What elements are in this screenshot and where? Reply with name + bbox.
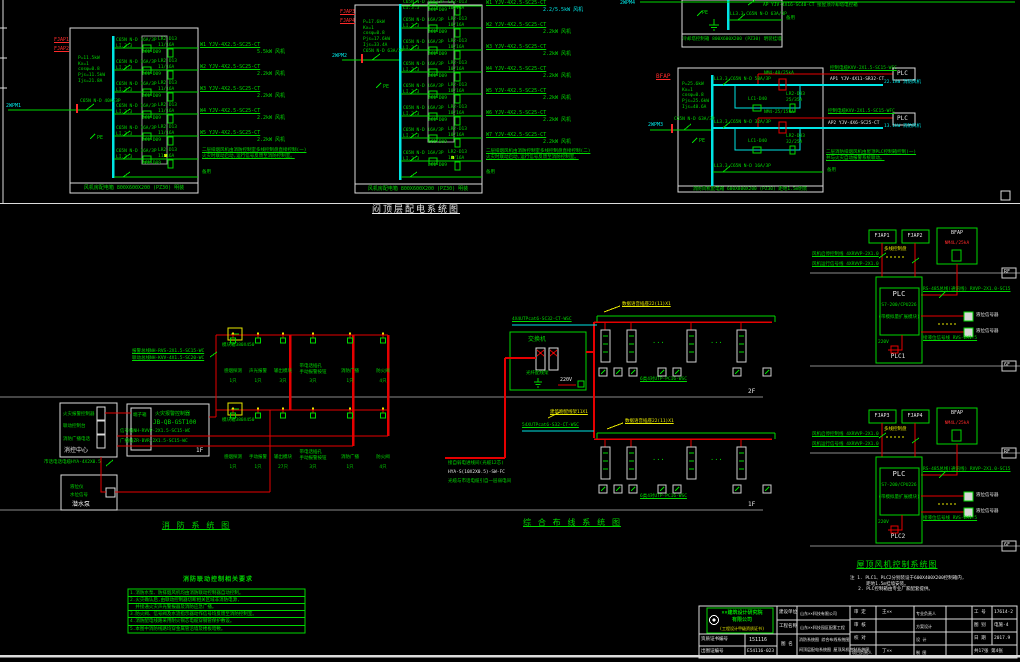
cabling-outlet-label-2f: 数据语音插座22(11)X1 <box>622 302 671 308</box>
fire-device-name: 防火阀 <box>376 369 390 375</box>
panel2-feeder-tag: 2WPM2 <box>332 53 347 59</box>
fire-device-qty: 3只 <box>279 379 286 385</box>
panel4-params: P=25.6kW Kx=1 cosφ=0.8 Pjs=25.6kW Ijs=48… <box>682 82 709 110</box>
titleblock-chart-no: E54116-023 <box>747 649 774 655</box>
titleblock-chart-label: 出图证编号 <box>701 649 724 655</box>
fan1-protector: NM4L/25kA <box>945 241 969 247</box>
panel4-b3-spare: 备用 <box>827 168 836 174</box>
cabling-ellipsis: ··· <box>710 456 723 465</box>
panel2-branch-thermal: LR2-D13 10/16A <box>448 0 467 11</box>
fan1-level-line: 接液位信号线 RVS-2X1.5 <box>923 336 977 342</box>
cabling-outlet-label-1f: 数据语音插座22(11)X1 <box>625 419 674 425</box>
panel1-feeder-tag: 2WPM1 <box>6 103 21 109</box>
fan1-signal-line: 风机运行信号线 4XRVVP-2X1.0 <box>812 262 879 268</box>
notes-row: 3.防火阀、信号阀及水流指示器动作信号均反馈至消防控制室。 <box>130 612 257 618</box>
fan1-manual-panel: 多线控制盘 <box>884 247 907 253</box>
fan1-sensor: 液位信号器 <box>976 329 999 335</box>
fan1-marker-6f: 6F <box>1004 362 1010 368</box>
fan1-sensor: 液位信号器 <box>976 313 999 319</box>
fire-device-name: 感烟探测 <box>224 455 242 461</box>
panel1-branch-breaker: C65N N-D 16A/3P LI.3.3 <box>116 60 157 71</box>
panel2-branch-thermal: LR2-D13 10/16A <box>448 39 467 50</box>
panel2-branch-breaker: C65N N-D 16A/3P LI.3.3 <box>403 106 444 117</box>
fire-device-qty: 1只 <box>229 379 236 385</box>
panel2-branch-breaker: C65N N-D 16A/3P LI.3.3 <box>403 62 444 73</box>
cabling-source-line3: 光缆与市话电缆引自一层弱电间 <box>448 479 511 485</box>
panel4-b2-cable: AP2 YJV-4X6-SC25-CT <box>828 121 879 127</box>
panel2-branch-contactor: LC1-D09 <box>428 30 447 36</box>
panel1-cable: W1 YJV-4X2.5-SC25-CT <box>200 42 260 48</box>
cabling-mdf-label: 建筑物配线架11X1 <box>550 410 588 416</box>
panel1-cable: W5 YJV-4X2.5-SC25-CT <box>200 130 260 136</box>
cabling-source-line2: HYA-S(10X2X0.5)-SW-FC <box>448 470 505 476</box>
cabling-odf-label: 光纤配线架 <box>526 371 549 377</box>
cad-drawing-sheet: 闷顶层配电系统图 FJAP1 FJAP2 2WPM1 C65N N-D 40A/… <box>0 0 1020 662</box>
fire-cable-broadcast: 广播线ZR-BVR-2X1.5-SC15-WC <box>120 439 188 445</box>
panel2-branch-contactor: LC1-D09 <box>428 52 447 58</box>
panel2-cable: W1 YJV-4X2.5-SC25-CT <box>486 0 546 6</box>
panel2-load: 2.2kW 风机 <box>543 73 571 79</box>
fan2-marker-6f: 6F <box>1004 542 1010 548</box>
panel2-branch-breaker: C65N N-D 16A/3P LI.3.3 <box>403 128 444 139</box>
panel4-b2-load: 13.1kW 消防风机 <box>884 124 921 130</box>
fire-diagram-title: 消 防 系 统 图 <box>162 521 230 531</box>
fan2-ai-module: (带模拟量扩展模块) <box>878 495 919 501</box>
panel2-pe-label: PE <box>383 84 389 90</box>
titleblock-jobno-value: 17614-2 <box>994 610 1013 616</box>
panel3-feeder-tag: 2WPM4 <box>620 0 635 6</box>
titleblock-sheet-names1: 消防系统图 综合布线系统图 <box>799 637 849 642</box>
panel2-load: 2.2kW 风机 <box>543 29 571 35</box>
titleblock-owner: 山东××科技有限公司 <box>800 611 837 616</box>
titleblock-cert-no: 151116 <box>749 637 767 643</box>
panel2-branch-thermal: LR2-D13 10/16A <box>448 83 467 94</box>
titleblock-company-line1: ××建筑设计研究院 <box>721 610 762 616</box>
cabling-riser-1f: 54XUTPcat6-S32-CT-WSC <box>522 423 579 429</box>
panel3-spare-label: 备用 <box>786 16 795 22</box>
panel1-pe-label: PE <box>97 135 103 141</box>
fire-device-name: 消防广播 <box>341 369 359 375</box>
fire-device-name: 防火阀 <box>376 455 390 461</box>
fire-module-box-label: 模块箱380X450 <box>222 343 254 349</box>
titleblock-pm-label: 项目负责人 <box>852 650 872 655</box>
notes-row: 5.本图中消防线路均穿金属管沿墙及楼板暗敷。 <box>130 627 225 633</box>
fire-center-label: 消控中心 <box>64 447 88 455</box>
panel2-branch-breaker: C65N N-D 16A/3P LI.3.3 <box>403 84 444 95</box>
panel4-note: 二层消防排烟风机由屋顶PLC控制箱控制(一) 并与火灾自动报警系统联动。 <box>826 150 916 161</box>
fan1-control-line: 风机启停控制线 4XRVVP-2X1.0 <box>812 252 879 258</box>
panel2-branch-breaker: C65N N-D 16A/3P LI.3.3 <box>403 151 444 162</box>
fan2-manual-panel: 多线控制盘 <box>884 427 907 433</box>
panel1-branch-thermal: LR2-D13 11/16A <box>158 81 177 92</box>
fan2-fjap4-tag: FJAP4 <box>907 413 922 419</box>
fan2-fjap3-tag: FJAP3 <box>874 413 889 419</box>
panel1-branch-thermal: LR2-D13 11/16A <box>158 103 177 114</box>
fire-controller-model: JB-QB-GST100 <box>153 419 196 427</box>
panel1-tag2: FJAP2 <box>54 46 69 52</box>
panel4-b2-control-cable: 控制电缆KVV-2X1.5-SC15-WFC <box>828 109 895 115</box>
panel2-load: 2.2kW 风机 <box>543 51 571 57</box>
notes-table-title: 消防联动控制相关要求 <box>183 576 253 584</box>
titleblock-reviewer-label: 审 核 <box>854 623 866 629</box>
panel1-feeder-breaker: C65N N-D 40A/3P <box>80 99 121 105</box>
panel1-cable: W2 YJV-4X2.5-SC25-CT <box>200 64 260 70</box>
titleblock-pm-name: 丁×× <box>882 649 892 655</box>
panel2-branch-contactor: LC1-D09 <box>428 140 447 146</box>
panel2-branch-thermal: LR2-D13 10/16A <box>448 105 467 116</box>
panel4-b2-thermal: LR2-D33 32/25A <box>786 134 805 145</box>
fire-device-qty: 27只 <box>278 465 288 471</box>
fire-cable-alarm-bus: 报警总线NH-RVS-2X1.5-SC15-WC <box>132 349 204 355</box>
fire-pump-label: 潜水泵 <box>72 501 90 509</box>
panel2-tag2: FJAP4 <box>340 18 355 24</box>
titleblock-cert-label: 资质证书编号 <box>701 637 728 643</box>
panel4-b3-breaker: LL3.3 C65N N-D 16A/3P <box>714 164 771 170</box>
fan-control-graphics <box>869 228 1016 551</box>
panel1-load: 2.2kW 风机 <box>257 115 285 121</box>
fire-device-name: 手动报警 <box>249 455 267 461</box>
panel2-spare-label: 备用 <box>486 170 495 176</box>
fan1-marker-rf: RF <box>1004 269 1010 275</box>
fan2-sensor: 液位信号器 <box>976 509 999 515</box>
titleblock-approver-label: 审 定 <box>854 610 866 616</box>
panel1-bottom-label: 风机房配电箱 800X600X200 (PZ30) 明装 <box>84 185 184 191</box>
titleblock-company-line2: 有限公司 <box>732 617 752 623</box>
fan2-marker-rf: RF <box>1004 449 1010 455</box>
panel1-branch-thermal: LR2-D13 11/16A <box>158 125 177 136</box>
panel1-load: 2.2kW 风机 <box>257 93 285 99</box>
panel4-b1-breaker: LL3.3 C65N N-D 50A/3P <box>714 77 771 83</box>
panel1-cable: W4 YJV-4X2.5-SC25-CT <box>200 108 260 114</box>
fan1-rs485: RS-485总线(通讯线) RVVP-2X1.0-SC15 <box>923 287 1011 293</box>
fire-device-qty: 1只 <box>254 465 261 471</box>
fan1-name: PLC1 <box>891 353 905 361</box>
panel1-branch-breaker: C65N N-D 16A/3P LI.3.3 <box>116 104 157 115</box>
panel1-branch-breaker: C65N N-D 16A/3P LI.3.3 <box>116 126 157 137</box>
panel4-feeder-tag: 2WPM3 <box>648 122 663 128</box>
panel1-tag1: FJAP1 <box>54 37 69 43</box>
fan2-cpu: S7-200/CPU226 <box>881 483 916 489</box>
fan1-ai-module: (带模拟量扩展模块) <box>878 315 919 321</box>
panel4-b1-cable: AP1 YJV-4X11-SR32-CT <box>830 77 884 83</box>
panel1-branch-contactor: LC1-D09 <box>142 138 161 144</box>
fan2-level-line: 接液位信号线 RVS-2X1.5 <box>923 516 977 522</box>
panel4-pe-label: PE <box>699 138 705 144</box>
panel2-cable: W2 YJV-4X2.5-SC25-CT <box>486 22 546 28</box>
cabling-source-line1: 接自弱电进线间(光缆12芯) <box>448 461 504 467</box>
panel2-cable: W4 YJV-4X2.5-SC25-CT <box>486 66 546 72</box>
titleblock-sheet-label: 图 名 <box>781 642 793 648</box>
panel2-branch-thermal: LR2-D13 10/16A <box>448 61 467 72</box>
panel1-load: 5.5kW 风机 <box>257 49 285 55</box>
fire-device-name: 带电话插孔 手动报警按钮 <box>300 364 327 375</box>
titleblock-drafter-label: 制 图 <box>916 650 926 655</box>
panel2-cable: W5 YJV-4X2.5-SC25-CT <box>486 88 546 94</box>
panel2-tag1: FJAP3 <box>340 9 355 15</box>
panel2-load: 2.2kW 风机 <box>543 95 571 101</box>
cabling-riser-2f: 4X4UTPcat6-SC32-CT-WSC <box>512 317 572 323</box>
fan1-fjap2-tag: FJAP2 <box>907 233 922 239</box>
cabling-220v-label: 220V <box>560 377 572 383</box>
panel2-branch-breaker: C65N N-D 16A/3P LI.3.3 <box>403 40 444 51</box>
fan1-cpu: S7-200/CPU226 <box>881 303 916 309</box>
fire-module-box-label: 模块箱380X450 <box>222 418 254 424</box>
fire-device-name: 输出模块 <box>274 455 292 461</box>
titleblock-sheet-count: 共17张 第4张 <box>974 649 1003 655</box>
panel3-bottom-label: 冷却塔控制箱 800X600X200 (PZ30) 明装挂墙 <box>682 37 781 43</box>
panel2-branch-contactor: LC1-D09 <box>428 118 447 124</box>
cabling-horizontal-cable-2f: 6类4对UTP-PC16-WSC <box>640 377 687 383</box>
panel1-branch-thermal: LR2-D13 11/16A <box>158 148 177 159</box>
titleblock-company-sub: (工程设计甲级资质证书) <box>720 626 765 631</box>
fire-device-qty: 3只 <box>309 465 316 471</box>
fire-cable-signal: 信号线NH-RVVP-2X1.5-SC15-WC <box>120 429 190 435</box>
panel1-branch-contactor: LC1-D09 <box>142 161 161 167</box>
panel4-bottom-label: 消防风机配电箱 600X800X200 (PZ30) 距地1.5m明装 <box>693 187 808 193</box>
fire-device-qty: 1只 <box>229 465 236 471</box>
panel4-b2-breaker: LL3.3 C65N N-D 32A/3P <box>714 120 771 126</box>
titleblock-project-label: 工程名称 <box>779 624 797 630</box>
fan2-rs485: RS-485总线(通讯线) RVVP-2X1.0-SC15 <box>923 467 1011 473</box>
fire-cable-phone: 市话电话电缆HYA-4X2X0.5 <box>44 460 101 466</box>
floor-marker-1f: 1F <box>748 501 755 509</box>
fan2-control-line: 风机启停控制线 4XRVVP-2X1.0 <box>812 432 879 438</box>
panel1-params: P=11.5kW Kx=1 cosφ=0.8 Pjs=11.5kW Ijs=21… <box>78 56 105 84</box>
panel2-branch-breaker: C65N N-D 16A/3P LI.3.3 <box>403 18 444 29</box>
fire-device-name: 输出模块 <box>274 369 292 375</box>
panel1-branch-contactor: LC1-D09 <box>142 116 161 122</box>
panel1-branch-contactor: LC1-D09 <box>142 72 161 78</box>
panel2-load: 2.2kW 风机 <box>543 117 571 123</box>
panel2-load: 2.2kW 风机 <box>543 139 571 145</box>
cabling-diagram-title: 综 合 布 线 系 统 图 <box>523 518 621 528</box>
panel2-branch-thermal: LR2-D13 10/16A <box>448 150 467 161</box>
panel2-smoke-fan-note: 二层排烟风机由消防控制室多线控制盘直接控制(二) 火灾时联动启动,运行信号反馈至… <box>486 149 590 160</box>
titleblock-approver-name: 王×× <box>882 610 892 616</box>
panel1-branch-thermal: LR2-D13 11/16A <box>158 37 177 48</box>
panel4-b1-protector: NM4-40/25kA <box>764 71 794 77</box>
panel1-branch-breaker: C65N N-D 16A/3P LI.3.3 <box>116 82 157 93</box>
panel2-branch-contactor: LC1-D09 <box>428 96 447 102</box>
panel4-b1-control-cable: 控制电缆KVV-2X1.5-SC15-WFC <box>830 66 897 72</box>
fan1-220v: 220V <box>878 340 889 346</box>
cabling-switch-label: 交换机 <box>528 336 546 344</box>
panel2-cable: W7 YJV-4X2.5-SC25-CT <box>486 132 546 138</box>
titleblock-jobno-label: 工 号 <box>974 610 986 616</box>
titleblock-category-label: 图 别 <box>974 623 986 629</box>
titleblock-category-value: 电施-4 <box>994 623 1008 629</box>
fire-center-item: 联动控制台 <box>63 424 86 430</box>
panel4-b1-load: 22.1kW 消防风机 <box>884 80 921 86</box>
panel1-load: 2.2kW 风机 <box>257 71 285 77</box>
fire-controller-floor: 1F <box>196 447 203 455</box>
notes-row: 4.消防配电线路采用耐火铜芯电缆穿钢管保护敷设。 <box>130 619 234 625</box>
panel1-cable: W3 YJV-4X2.5-SC25-CT <box>200 86 260 92</box>
fire-center-item: 火灾报警控制器 <box>63 412 95 418</box>
panel2-feeder-breaker: C65N N-D 63A/3P <box>363 49 404 55</box>
panel4-tag: BFAP <box>656 73 670 81</box>
fire-pump-item: 液位仪 <box>70 485 84 491</box>
fire-device-qty: 1只 <box>254 379 261 385</box>
panel1-spare-label: 备用 <box>202 170 211 176</box>
panel2-cable: W3 YJV-4X2.5-SC25-CT <box>486 44 546 50</box>
fan2-sensor: 液位信号器 <box>976 493 999 499</box>
titleblock-designer-label: 设 计 <box>916 637 926 642</box>
floor-lines <box>0 273 1020 546</box>
fire-terminal-box: 端子箱 <box>133 413 147 419</box>
panel1-branch-contactor: LC1-D09 <box>142 94 161 100</box>
panel1-branch-breaker: C65N N-D 16A/3P LI.3.3 <box>116 149 157 160</box>
panel4-feeder-breaker: C65N N-D 63A/3P <box>674 117 715 123</box>
titleblock-scheme-label: 方案设计 <box>916 624 932 629</box>
panel2-branch-contactor: LC1-D09 <box>428 8 447 14</box>
fire-device-qty: 1只 <box>346 465 353 471</box>
notes-row: 1.消防水泵、防排烟风机均由消防联动控制器自动控制。 <box>130 591 243 597</box>
fan1-fjap1-tag: FJAP1 <box>874 233 889 239</box>
titleblock-owner-label: 建设单位 <box>779 610 797 616</box>
panel2-branch-thermal: LR2-D13 10/16A <box>448 127 467 138</box>
panel4-b1-plc-label: PLC <box>897 70 908 78</box>
panel2-branch-contactor: LC1-D09 <box>428 74 447 80</box>
titleblock-checker-label: 校 对 <box>854 636 866 642</box>
panel4-b2-contactor: LC1-D40 <box>748 139 767 145</box>
panel1-branch-thermal: LR2-D13 11/16A <box>158 59 177 70</box>
panel1-branch-contactor: LC1-D09 <box>142 50 161 56</box>
titleblock-project: 山东××科技园区配套工程 <box>800 625 845 630</box>
panel4-b1-thermal: LR2-D33 25/35A <box>786 92 805 103</box>
titleblock-date-label: 日 期 <box>974 636 986 642</box>
fire-cable-linkage-bus: 联动总线NH-KVV-4X1.5-SC20-WC <box>132 356 204 362</box>
titleblock-discipline-lead-label: 专业负责人 <box>916 611 936 616</box>
panel4-b2-plc-label: PLC <box>897 115 908 123</box>
fire-device-qty: 4只 <box>379 465 386 471</box>
panel3-top-cable: AP YJV-4X16-SC40-CT 接屋顶冷却塔电控箱 <box>763 3 858 9</box>
panel4-b2-protector: NM4-25/15kA <box>764 110 794 116</box>
fire-device-name: 带电话插孔 手动报警按钮 <box>300 450 327 461</box>
panel4-b1-contactor: LC1-D40 <box>748 97 767 103</box>
panel2-bottom-label: 风机房配电箱 800X600X200 (PZ30) 明装 <box>368 186 468 192</box>
cabling-ellipsis: ··· <box>710 339 723 348</box>
fan-diagram-notes: 注 1. PLC1、PLC2分别装设于600X400X200控制箱内, 距地1.… <box>850 576 965 593</box>
fire-device-qty: 1只 <box>346 379 353 385</box>
fan2-plc-label: PLC <box>893 470 906 479</box>
floor-marker-2f: 2F <box>748 388 755 396</box>
titleblock-date-value: 2017.9 <box>994 636 1010 642</box>
cabling-horizontal-cable-1f: 6类4对UTP-PC16-WSC <box>640 494 687 500</box>
panel1-branch-breaker: C65N N-D 16A/3P LI.3.3 <box>116 38 157 49</box>
panel3-pe-label: PE <box>702 10 708 16</box>
fire-device-qty: 4只 <box>379 379 386 385</box>
panel2-branch-contactor: LC1-D09 <box>428 163 447 169</box>
fire-controller-name: 火灾报警控制器 <box>155 411 190 417</box>
fire-device-name: 感烟探测 <box>224 369 242 375</box>
cabling-ellipsis: ··· <box>652 456 665 465</box>
fan2-220v: 220V <box>878 520 889 526</box>
fire-device-name: 消防广播 <box>341 455 359 461</box>
fan2-protector: NM4L/25kA <box>945 421 969 427</box>
notes-row: 2.火灾确认后,由联动控制器切断相关区域非消防电源, <box>130 598 240 604</box>
fan2-signal-line: 风机运行信号线 4XRVVP-2X1.0 <box>812 442 879 448</box>
fire-device-qty: 3只 <box>309 379 316 385</box>
fire-pump-item: 水位信号 <box>70 493 88 499</box>
fan-diagram-title: 屋顶风机控制系统图 <box>857 560 938 570</box>
panel3-branch-breaker: LL3.3 C65N N-D 63A/3P <box>730 12 787 18</box>
fan2-bfap-tag: BFAP <box>951 410 963 416</box>
cabling-ellipsis: ··· <box>652 339 665 348</box>
panel2-branch-thermal: LR2-D13 10/16A <box>448 17 467 28</box>
fan2-name: PLC2 <box>891 533 905 541</box>
panel2-load: 2.2/5.5kW 风机 <box>543 7 583 13</box>
notes-row: 并接通火灾声光警报器及消防应急广播。 <box>130 605 216 611</box>
fan1-plc-label: PLC <box>893 290 906 299</box>
panel1-load: 2.2kW 风机 <box>257 137 285 143</box>
top-section-title: 闷顶层配电系统图 <box>372 205 460 216</box>
fire-center-item: 消防广播电话 <box>63 437 90 443</box>
panel2-params: P=17.6kW Kx=1 cosφ=0.8 Pjs=17.6kW Ijs=33… <box>363 20 390 48</box>
fire-device-name: 声光报警 <box>249 369 267 375</box>
fan1-bfap-tag: BFAP <box>951 230 963 236</box>
panel1-smoke-fan-note: 二层排烟风机由消防控制室多线控制盘直接控制(一) 火灾时联动启动,运行信号反馈至… <box>202 148 306 159</box>
panel2-cable: W6 YJV-4X2.5-SC25-CT <box>486 110 546 116</box>
